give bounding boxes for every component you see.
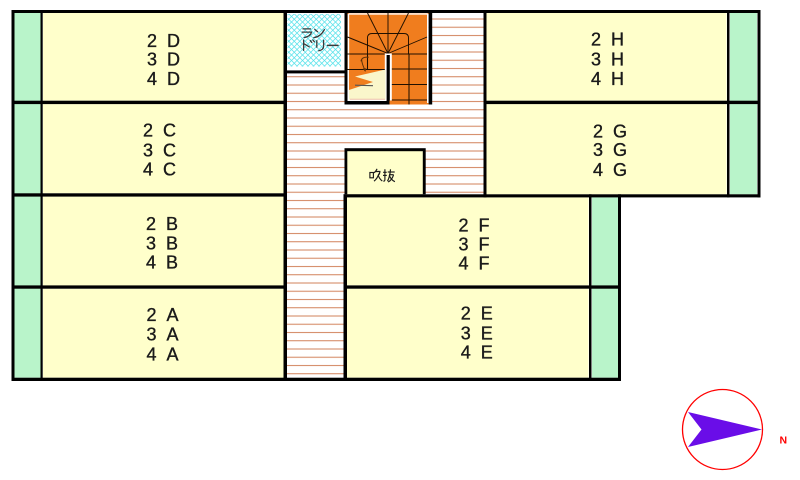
svg-text:4 D: 4 D xyxy=(147,69,180,89)
svg-text:3 G: 3 G xyxy=(593,140,627,160)
svg-text:2 H: 2 H xyxy=(591,30,624,50)
svg-text:3 F: 3 F xyxy=(458,234,489,254)
svg-text:3 B: 3 B xyxy=(146,233,178,253)
svg-text:2 E: 2 E xyxy=(461,304,493,324)
svg-text:4 C: 4 C xyxy=(143,160,176,180)
svg-text:3 E: 3 E xyxy=(461,324,493,344)
svg-text:2 F: 2 F xyxy=(458,216,489,236)
svg-text:4 H: 4 H xyxy=(591,69,624,89)
svg-text:2 G: 2 G xyxy=(593,121,627,141)
svg-text:N: N xyxy=(780,434,788,446)
svg-text:2 D: 2 D xyxy=(147,31,180,51)
svg-text:3 C: 3 C xyxy=(143,140,176,160)
svg-text:3 A: 3 A xyxy=(146,324,178,344)
svg-text:2 A: 2 A xyxy=(146,305,178,325)
svg-text:4 F: 4 F xyxy=(458,254,489,274)
svg-text:2 C: 2 C xyxy=(143,121,176,141)
svg-text:2 B: 2 B xyxy=(146,214,178,234)
svg-text:3 H: 3 H xyxy=(591,49,624,69)
svg-text:4 A: 4 A xyxy=(146,344,178,364)
svg-text:4 G: 4 G xyxy=(593,160,627,180)
svg-text:4 E: 4 E xyxy=(461,343,493,363)
svg-text:3 D: 3 D xyxy=(147,49,180,69)
svg-text:4 B: 4 B xyxy=(146,252,178,272)
